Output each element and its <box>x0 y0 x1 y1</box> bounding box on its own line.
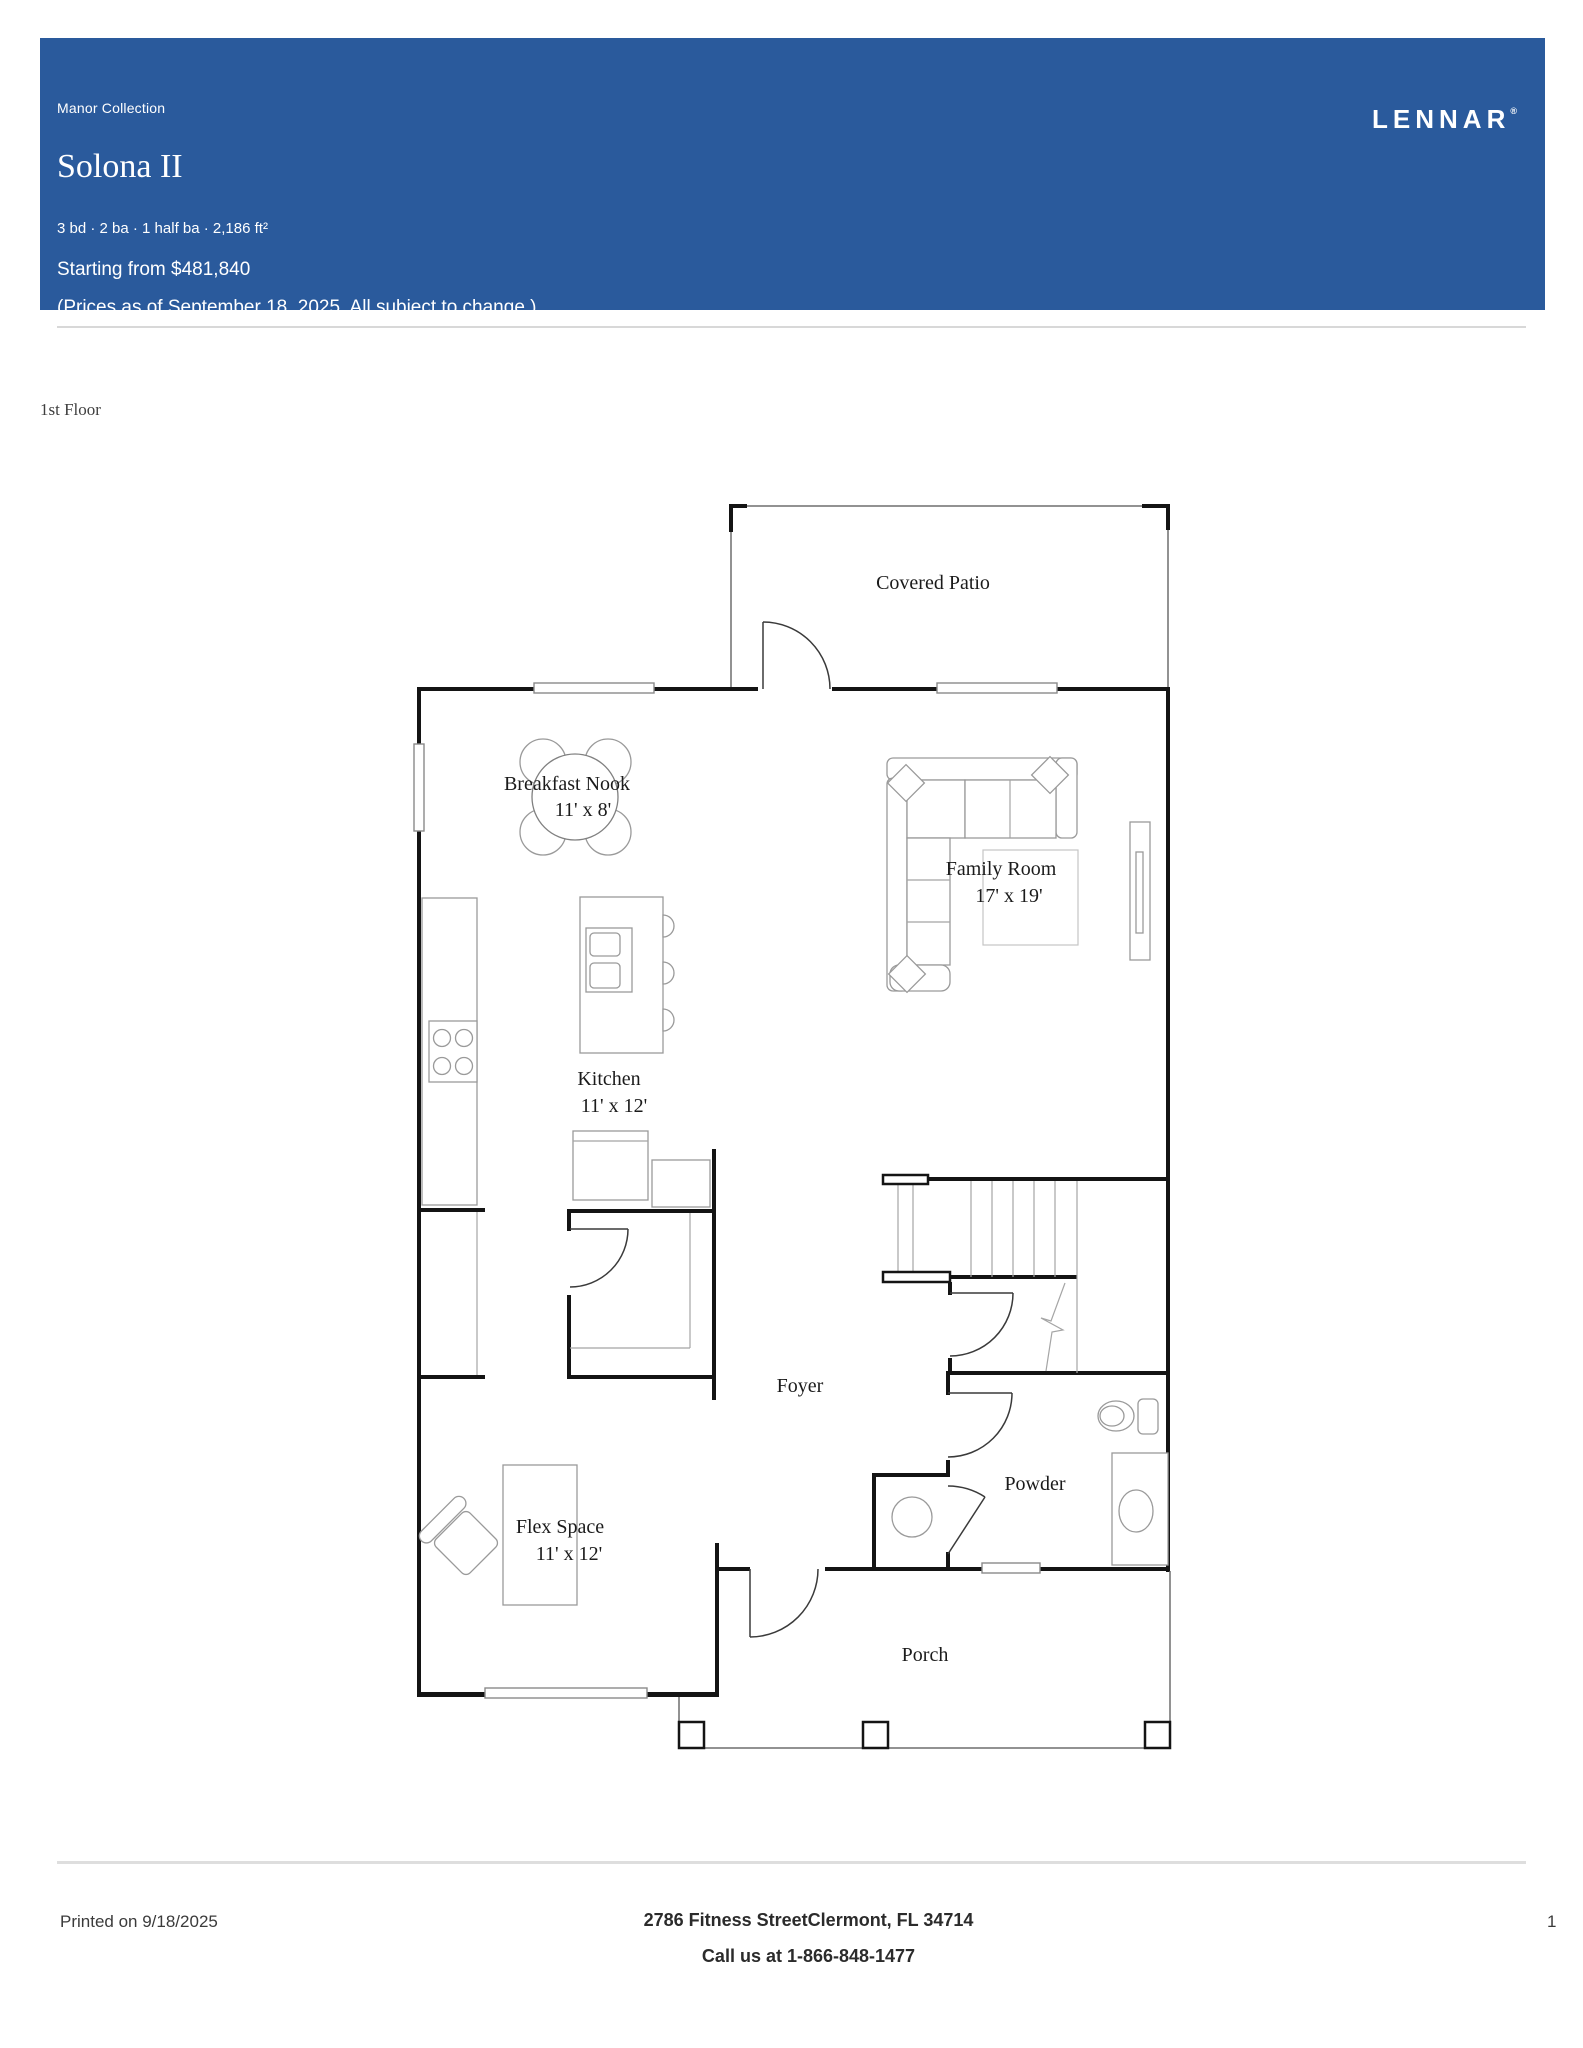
kitchen-cabinet <box>573 1131 648 1200</box>
footer-phone: Call us at 1-866-848-1477 <box>702 1946 915 1967</box>
breakfast-table <box>520 739 631 855</box>
page-title: Solona II <box>57 148 183 186</box>
page-number: 1 <box>1547 1912 1556 1932</box>
starting-price: Starting from $481,840 <box>57 259 250 281</box>
porch-column <box>863 1722 888 1748</box>
pantry-shelves <box>570 1213 690 1348</box>
kitchen-fixtures <box>422 897 710 1375</box>
tv-console <box>1130 822 1150 960</box>
lennar-logo: LENNAR® <box>1372 104 1517 135</box>
room-label-powder: Powder <box>1004 1473 1065 1495</box>
patio-door <box>763 622 830 689</box>
price-disclaimer: (Prices as of September 18, 2025. All su… <box>57 297 537 319</box>
refrigerator <box>652 1160 710 1207</box>
room-label-kitchen: Kitchen <box>577 1068 640 1090</box>
porch-column <box>1145 1722 1170 1748</box>
floor-label: 1st Floor <box>40 400 101 420</box>
powder-door <box>948 1393 1012 1457</box>
room-label-breakfast-nook: Breakfast Nook <box>504 773 630 795</box>
room-label-family-room: Family Room <box>946 858 1057 880</box>
porch-column <box>679 1722 704 1748</box>
front-door <box>750 1569 818 1637</box>
lennar-logo-text: LENNAR <box>1372 104 1510 134</box>
stair-closet-door <box>950 1293 1013 1356</box>
range <box>429 1021 477 1082</box>
collection-label: Manor Collection <box>57 100 165 116</box>
room-label-foyer: Foyer <box>777 1375 824 1397</box>
document-page: Covered Patio Breakfast Nook 11' x 8' Fa… <box>0 0 1583 2048</box>
island-sink <box>586 928 632 992</box>
footer-divider <box>57 1861 1526 1864</box>
room-dims-family-room: 17' x 19' <box>975 885 1042 907</box>
water-closet-door <box>948 1486 985 1554</box>
printed-date: Printed on 9/18/2025 <box>60 1912 218 1932</box>
stairs <box>883 1175 1077 1373</box>
flex-chair <box>417 1494 505 1582</box>
home-specs: 3 bd · 2 ba · 1 half ba · 2,186 ft² <box>57 220 268 237</box>
vanity-sink <box>1112 1453 1168 1565</box>
bar-stools <box>663 915 674 1031</box>
room-dims-kitchen: 11' x 12' <box>581 1095 647 1117</box>
toilet <box>1098 1399 1158 1434</box>
room-label-flex-space: Flex Space <box>516 1516 604 1538</box>
header-divider <box>57 326 1526 328</box>
pantry-door <box>570 1229 628 1287</box>
registered-mark: ® <box>1510 106 1517 116</box>
room-label-porch: Porch <box>902 1644 949 1666</box>
room-label-covered-patio: Covered Patio <box>876 572 990 594</box>
pedestal-sink <box>892 1497 932 1537</box>
footer-address: 2786 Fitness StreetClermont, FL 34714 <box>644 1910 974 1931</box>
covered-patio-outline <box>731 506 1168 687</box>
header-banner: Manor Collection Solona II 3 bd · 2 ba ·… <box>40 38 1545 310</box>
room-dims-breakfast-nook: 11' x 8' <box>555 799 611 821</box>
room-dims-flex-space: 11' x 12' <box>536 1543 602 1565</box>
